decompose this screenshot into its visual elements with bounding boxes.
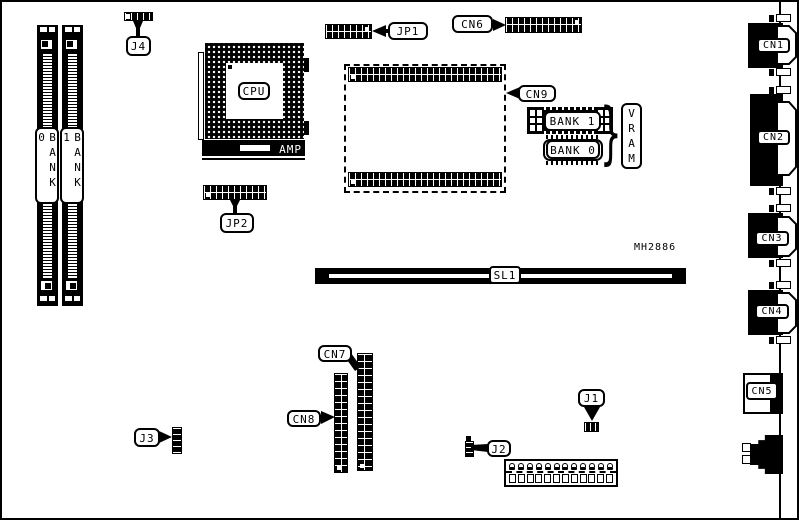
cn5-label: CN5 — [746, 382, 778, 400]
audio-jack-hole — [742, 443, 751, 452]
cn8-connector — [334, 373, 348, 473]
cn1-tab-top — [776, 14, 791, 22]
j2-connector — [465, 441, 474, 457]
cn6-connector — [505, 17, 582, 33]
cn1-tab-bottom — [776, 68, 791, 76]
power-connector — [504, 459, 618, 487]
cpu-socket-lever — [198, 52, 204, 140]
cn1-mount — [769, 15, 774, 22]
cn3-mount — [769, 260, 774, 267]
vram-label: VRAM — [621, 103, 642, 169]
cn9-label: CN9 — [518, 85, 556, 102]
jp2-label: JP2 — [220, 213, 254, 233]
sl1-label: SL1 — [489, 266, 521, 284]
cn8-label: CN8 — [287, 410, 321, 427]
simm-bank0-label: BANK 0 — [35, 127, 59, 204]
simm-cap — [37, 25, 58, 37]
jp1-label: JP1 — [388, 22, 428, 40]
simm-contacts — [43, 203, 52, 278]
cn2-label: CN2 — [757, 130, 790, 145]
cn4-mount — [769, 282, 774, 289]
j4-label: J4 — [126, 36, 151, 56]
cn4-label: CN4 — [755, 304, 789, 319]
cn4-mount — [769, 337, 774, 344]
amp-bar: AMP — [202, 140, 305, 156]
cpu-socket-tab — [304, 58, 309, 72]
simm-cap — [37, 294, 58, 306]
power-pins-top — [506, 461, 616, 468]
cn9-connector-top — [348, 67, 502, 82]
cn3-label: CN3 — [755, 231, 789, 246]
amp-bar-window — [240, 145, 270, 151]
socket-pin-grid — [529, 109, 543, 132]
cn2-tab-bottom — [776, 187, 791, 195]
simm-cap — [62, 294, 83, 306]
j1-label: J1 — [578, 389, 605, 407]
cn1-mount — [769, 69, 774, 76]
simm-latch — [64, 279, 79, 292]
amp-brand-label: AMP — [279, 143, 302, 156]
jp1-connector — [325, 24, 372, 39]
vram-bank1-label: BANK 1 — [544, 111, 601, 131]
simm-contacts — [68, 53, 77, 127]
cpu-socket-tab — [304, 121, 309, 135]
motherboard-diagram: BANK 0 BANK 1 J4 CPU AMP JP1 CN6 CN9 — [0, 0, 799, 520]
vram-bank0-label: BANK 0 — [546, 140, 600, 159]
audio-jack-connector — [750, 435, 783, 474]
power-pins-bottom — [506, 473, 616, 484]
j1-jumper — [584, 422, 599, 432]
cn7-connector — [357, 353, 373, 471]
socket-ticks — [544, 131, 596, 134]
cn2-mount — [769, 87, 774, 94]
simm-contacts — [43, 53, 52, 127]
cn4-tab-bottom — [776, 336, 791, 344]
cn3-tab-bottom — [776, 259, 791, 267]
simm-latch — [64, 38, 79, 51]
j4-connector — [124, 12, 153, 21]
simm-bank1-label: BANK 1 — [60, 127, 84, 204]
cn7-label: CN7 — [318, 345, 352, 362]
chip-pins — [546, 161, 600, 165]
simm-contacts — [68, 203, 77, 278]
vram-brace: } — [600, 102, 622, 166]
cpu-label: CPU — [238, 82, 270, 100]
cn6-label: CN6 — [452, 15, 493, 33]
pin1-marker — [228, 65, 232, 69]
cn9-connector-bottom — [348, 172, 502, 187]
part-number: MH2886 — [634, 242, 676, 253]
amp-underline — [202, 158, 305, 160]
j3-connector — [172, 427, 182, 454]
cn3-mount — [769, 205, 774, 212]
simm-latch — [39, 38, 54, 51]
j3-label: J3 — [134, 428, 160, 447]
cn4-tab-top — [776, 281, 791, 289]
jp2-connector — [203, 185, 267, 200]
cn3-tab-top — [776, 204, 791, 212]
simm-cap — [62, 25, 83, 37]
cn1-label: CN1 — [757, 38, 790, 53]
simm-latch — [39, 279, 54, 292]
j2-label: J2 — [487, 440, 511, 457]
cn2-tab-top — [776, 86, 791, 94]
audio-jack-hole — [742, 455, 751, 464]
cn2-mount — [769, 188, 774, 195]
socket-ticks — [544, 107, 596, 110]
